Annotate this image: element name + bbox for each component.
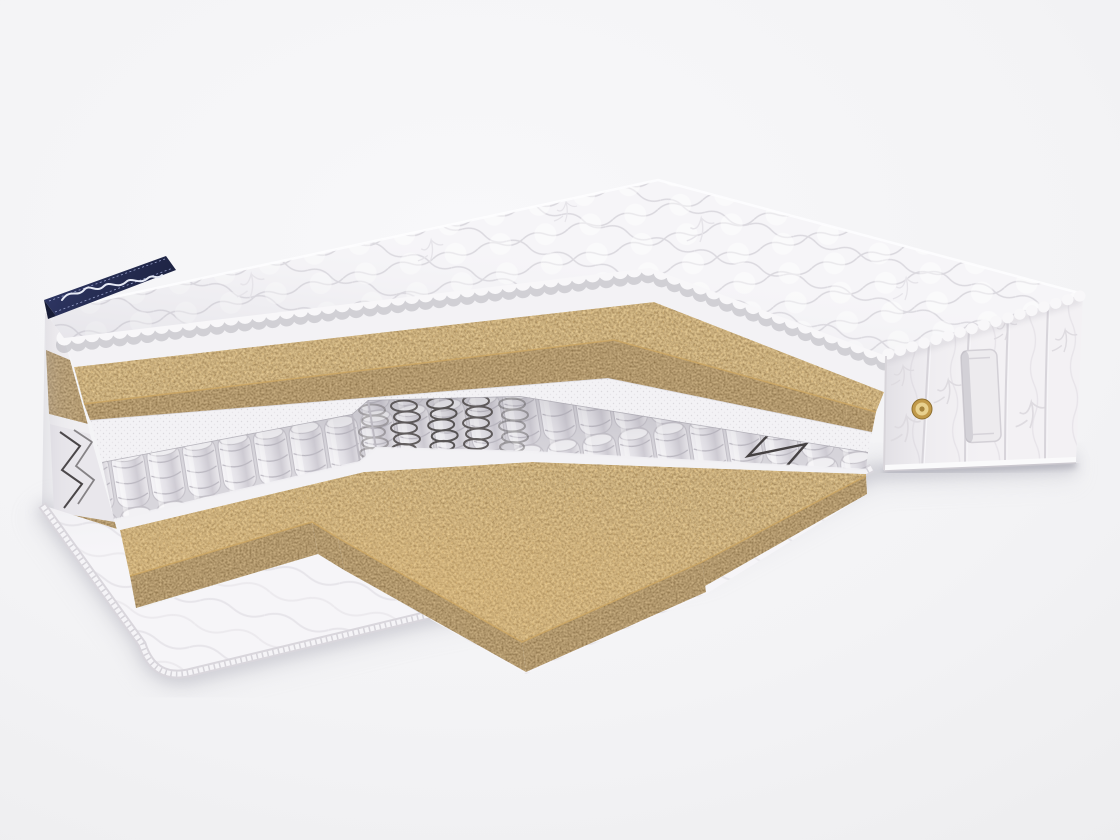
mattress-cutaway-render (0, 0, 1120, 840)
product-photo-stage (0, 0, 1120, 840)
side-handle (961, 349, 1002, 443)
air-vent-icon (912, 399, 932, 419)
